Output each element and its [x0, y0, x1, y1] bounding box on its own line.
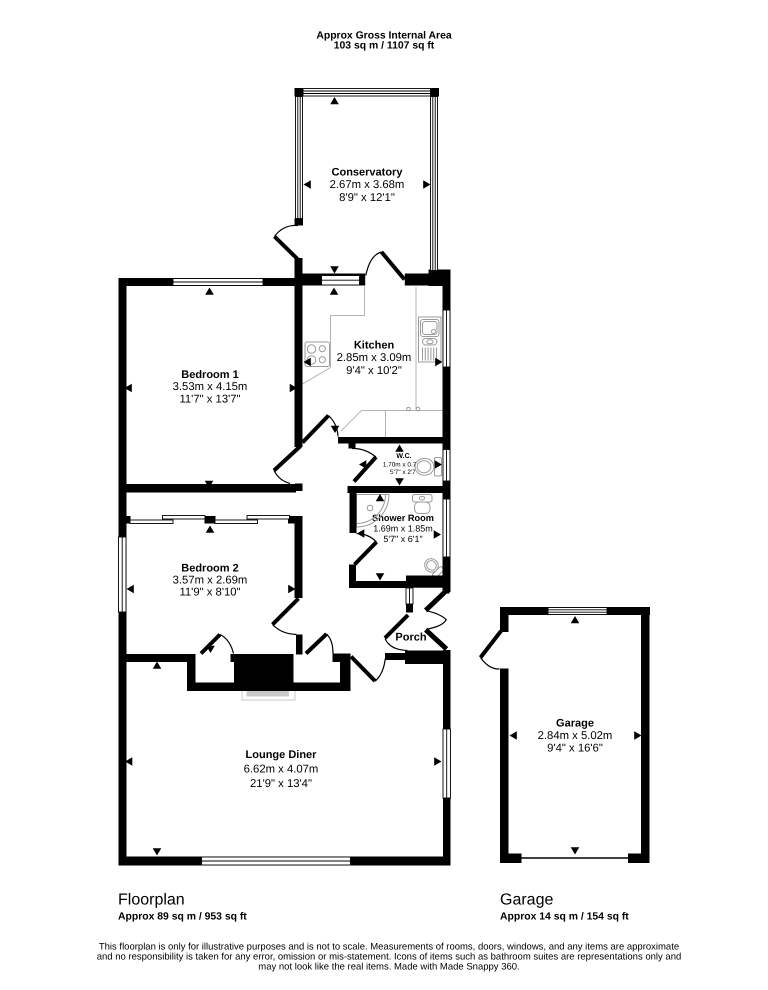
svg-text:Conservatory: Conservatory	[332, 167, 404, 179]
svg-text:Garage: Garage	[500, 892, 553, 909]
svg-text:9'4" x 10'2": 9'4" x 10'2"	[346, 365, 402, 377]
svg-text:5'7" x 6'1": 5'7" x 6'1"	[383, 534, 422, 544]
svg-text:Lounge Diner: Lounge Diner	[246, 749, 318, 761]
svg-text:1.69m x 1.85m: 1.69m x 1.85m	[373, 524, 433, 534]
svg-text:Bedroom 1: Bedroom 1	[181, 369, 238, 381]
svg-text:8'9" x 12'1": 8'9" x 12'1"	[339, 192, 395, 204]
svg-text:11'7" x 13'7": 11'7" x 13'7"	[179, 393, 240, 405]
svg-text:3.57m x 2.69m: 3.57m x 2.69m	[173, 575, 248, 587]
svg-text:Bedroom 2: Bedroom 2	[181, 563, 238, 575]
svg-text:2.85m x 3.09m: 2.85m x 3.09m	[337, 352, 412, 364]
svg-text:Approx 14 sq m / 154 sq ft: Approx 14 sq m / 154 sq ft	[500, 912, 629, 923]
svg-text:Shower Room: Shower Room	[372, 513, 434, 523]
svg-text:Floorplan: Floorplan	[118, 892, 185, 909]
svg-text:2.84m x 5.02m: 2.84m x 5.02m	[538, 730, 613, 742]
svg-text:9'4" x 16'6": 9'4" x 16'6"	[547, 743, 603, 755]
svg-text:Kitchen: Kitchen	[354, 340, 395, 352]
svg-text:W.C.: W.C.	[396, 453, 411, 460]
svg-text:5'7" x 2'7": 5'7" x 2'7"	[390, 469, 418, 476]
svg-text:11'9" x 8'10": 11'9" x 8'10"	[179, 587, 240, 599]
svg-text:may not look like the real ite: may not look like the real items. Made w…	[258, 961, 519, 972]
svg-text:Garage: Garage	[556, 718, 594, 730]
svg-text:103 sq m / 1107 sq ft: 103 sq m / 1107 sq ft	[334, 40, 435, 51]
svg-text:6.62m x 4.07m: 6.62m x 4.07m	[244, 764, 319, 776]
svg-text:Porch: Porch	[395, 632, 426, 644]
svg-text:21'9" x 13'4": 21'9" x 13'4"	[250, 778, 312, 790]
svg-text:2.67m x 3.68m: 2.67m x 3.68m	[330, 179, 405, 191]
svg-text:Approx 89 sq m / 953 sq ft: Approx 89 sq m / 953 sq ft	[118, 912, 247, 923]
svg-text:3.53m x 4.15m: 3.53m x 4.15m	[173, 381, 248, 393]
